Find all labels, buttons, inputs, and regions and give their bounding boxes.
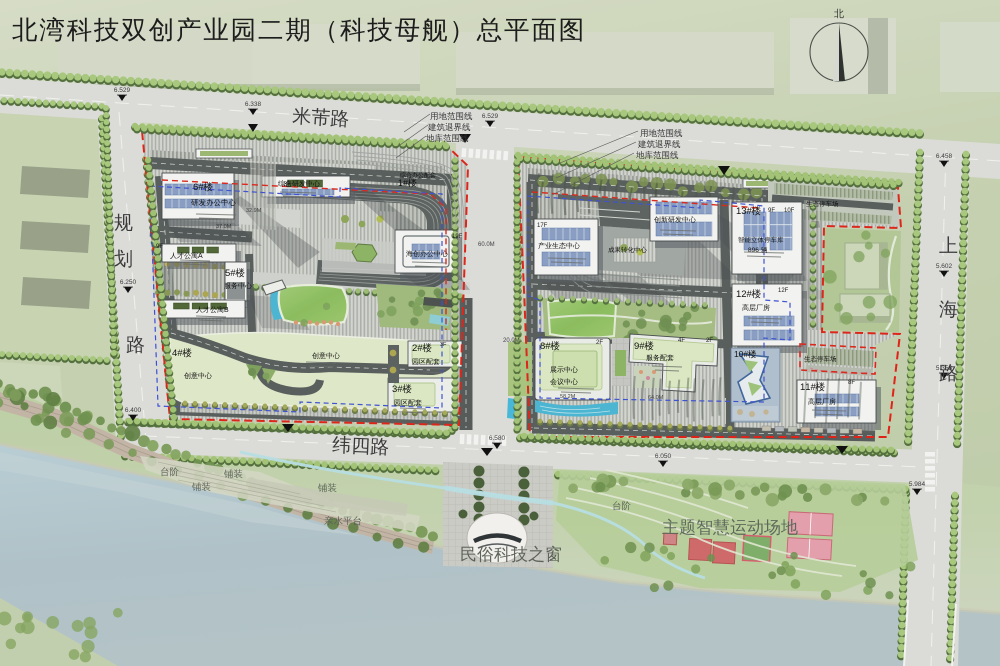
svg-text:9F: 9F — [768, 208, 775, 214]
svg-text:2F: 2F — [596, 340, 603, 346]
svg-text:4F: 4F — [678, 338, 685, 344]
svg-text:8F: 8F — [848, 380, 855, 386]
svg-text:#: # — [403, 178, 408, 188]
svg-text:12F: 12F — [778, 288, 789, 294]
svg-text:#: # — [177, 348, 183, 359]
svg-text:#: # — [746, 289, 752, 300]
svg-text:#: # — [545, 341, 551, 352]
svg-text:#: # — [639, 341, 645, 352]
svg-text:6.529: 6.529 — [482, 113, 499, 120]
svg-text:19F: 19F — [452, 234, 463, 240]
svg-text:#: # — [810, 382, 816, 393]
svg-text:5.602: 5.602 — [936, 263, 953, 270]
svg-text:6.529: 6.529 — [114, 87, 131, 94]
svg-text:#: # — [417, 343, 423, 354]
svg-text:6.458: 6.458 — [936, 153, 953, 160]
svg-text:6.580: 6.580 — [489, 435, 506, 442]
svg-text:17F: 17F — [537, 223, 548, 229]
svg-text:#: # — [743, 349, 748, 359]
svg-text:20.0M: 20.0M — [503, 338, 520, 344]
svg-text:#: # — [397, 384, 403, 395]
svg-text:64.0M: 64.0M — [648, 395, 664, 401]
svg-text:58.2M: 58.2M — [560, 394, 576, 400]
svg-text:A: A — [198, 253, 203, 260]
svg-text:#: # — [230, 268, 236, 279]
svg-text:#: # — [746, 206, 752, 217]
svg-text:6.050: 6.050 — [655, 453, 672, 460]
svg-text:6.338: 6.338 — [245, 101, 262, 108]
svg-text:5.984: 5.984 — [909, 481, 926, 488]
svg-text:6.250: 6.250 — [120, 279, 137, 286]
svg-text:2F: 2F — [706, 338, 713, 344]
svg-text:10F: 10F — [784, 208, 795, 214]
svg-text:896: 896 — [748, 247, 759, 254]
svg-text:3F: 3F — [440, 342, 447, 348]
svg-text:32.9M: 32.9M — [246, 208, 262, 214]
svg-text:B: B — [224, 307, 229, 314]
svg-text:9F: 9F — [156, 244, 163, 250]
svg-text:6.400: 6.400 — [125, 407, 142, 414]
svg-text:#: # — [198, 182, 204, 193]
svg-text:60.0M: 60.0M — [478, 242, 495, 248]
svg-text:37.0M: 37.0M — [216, 224, 232, 230]
